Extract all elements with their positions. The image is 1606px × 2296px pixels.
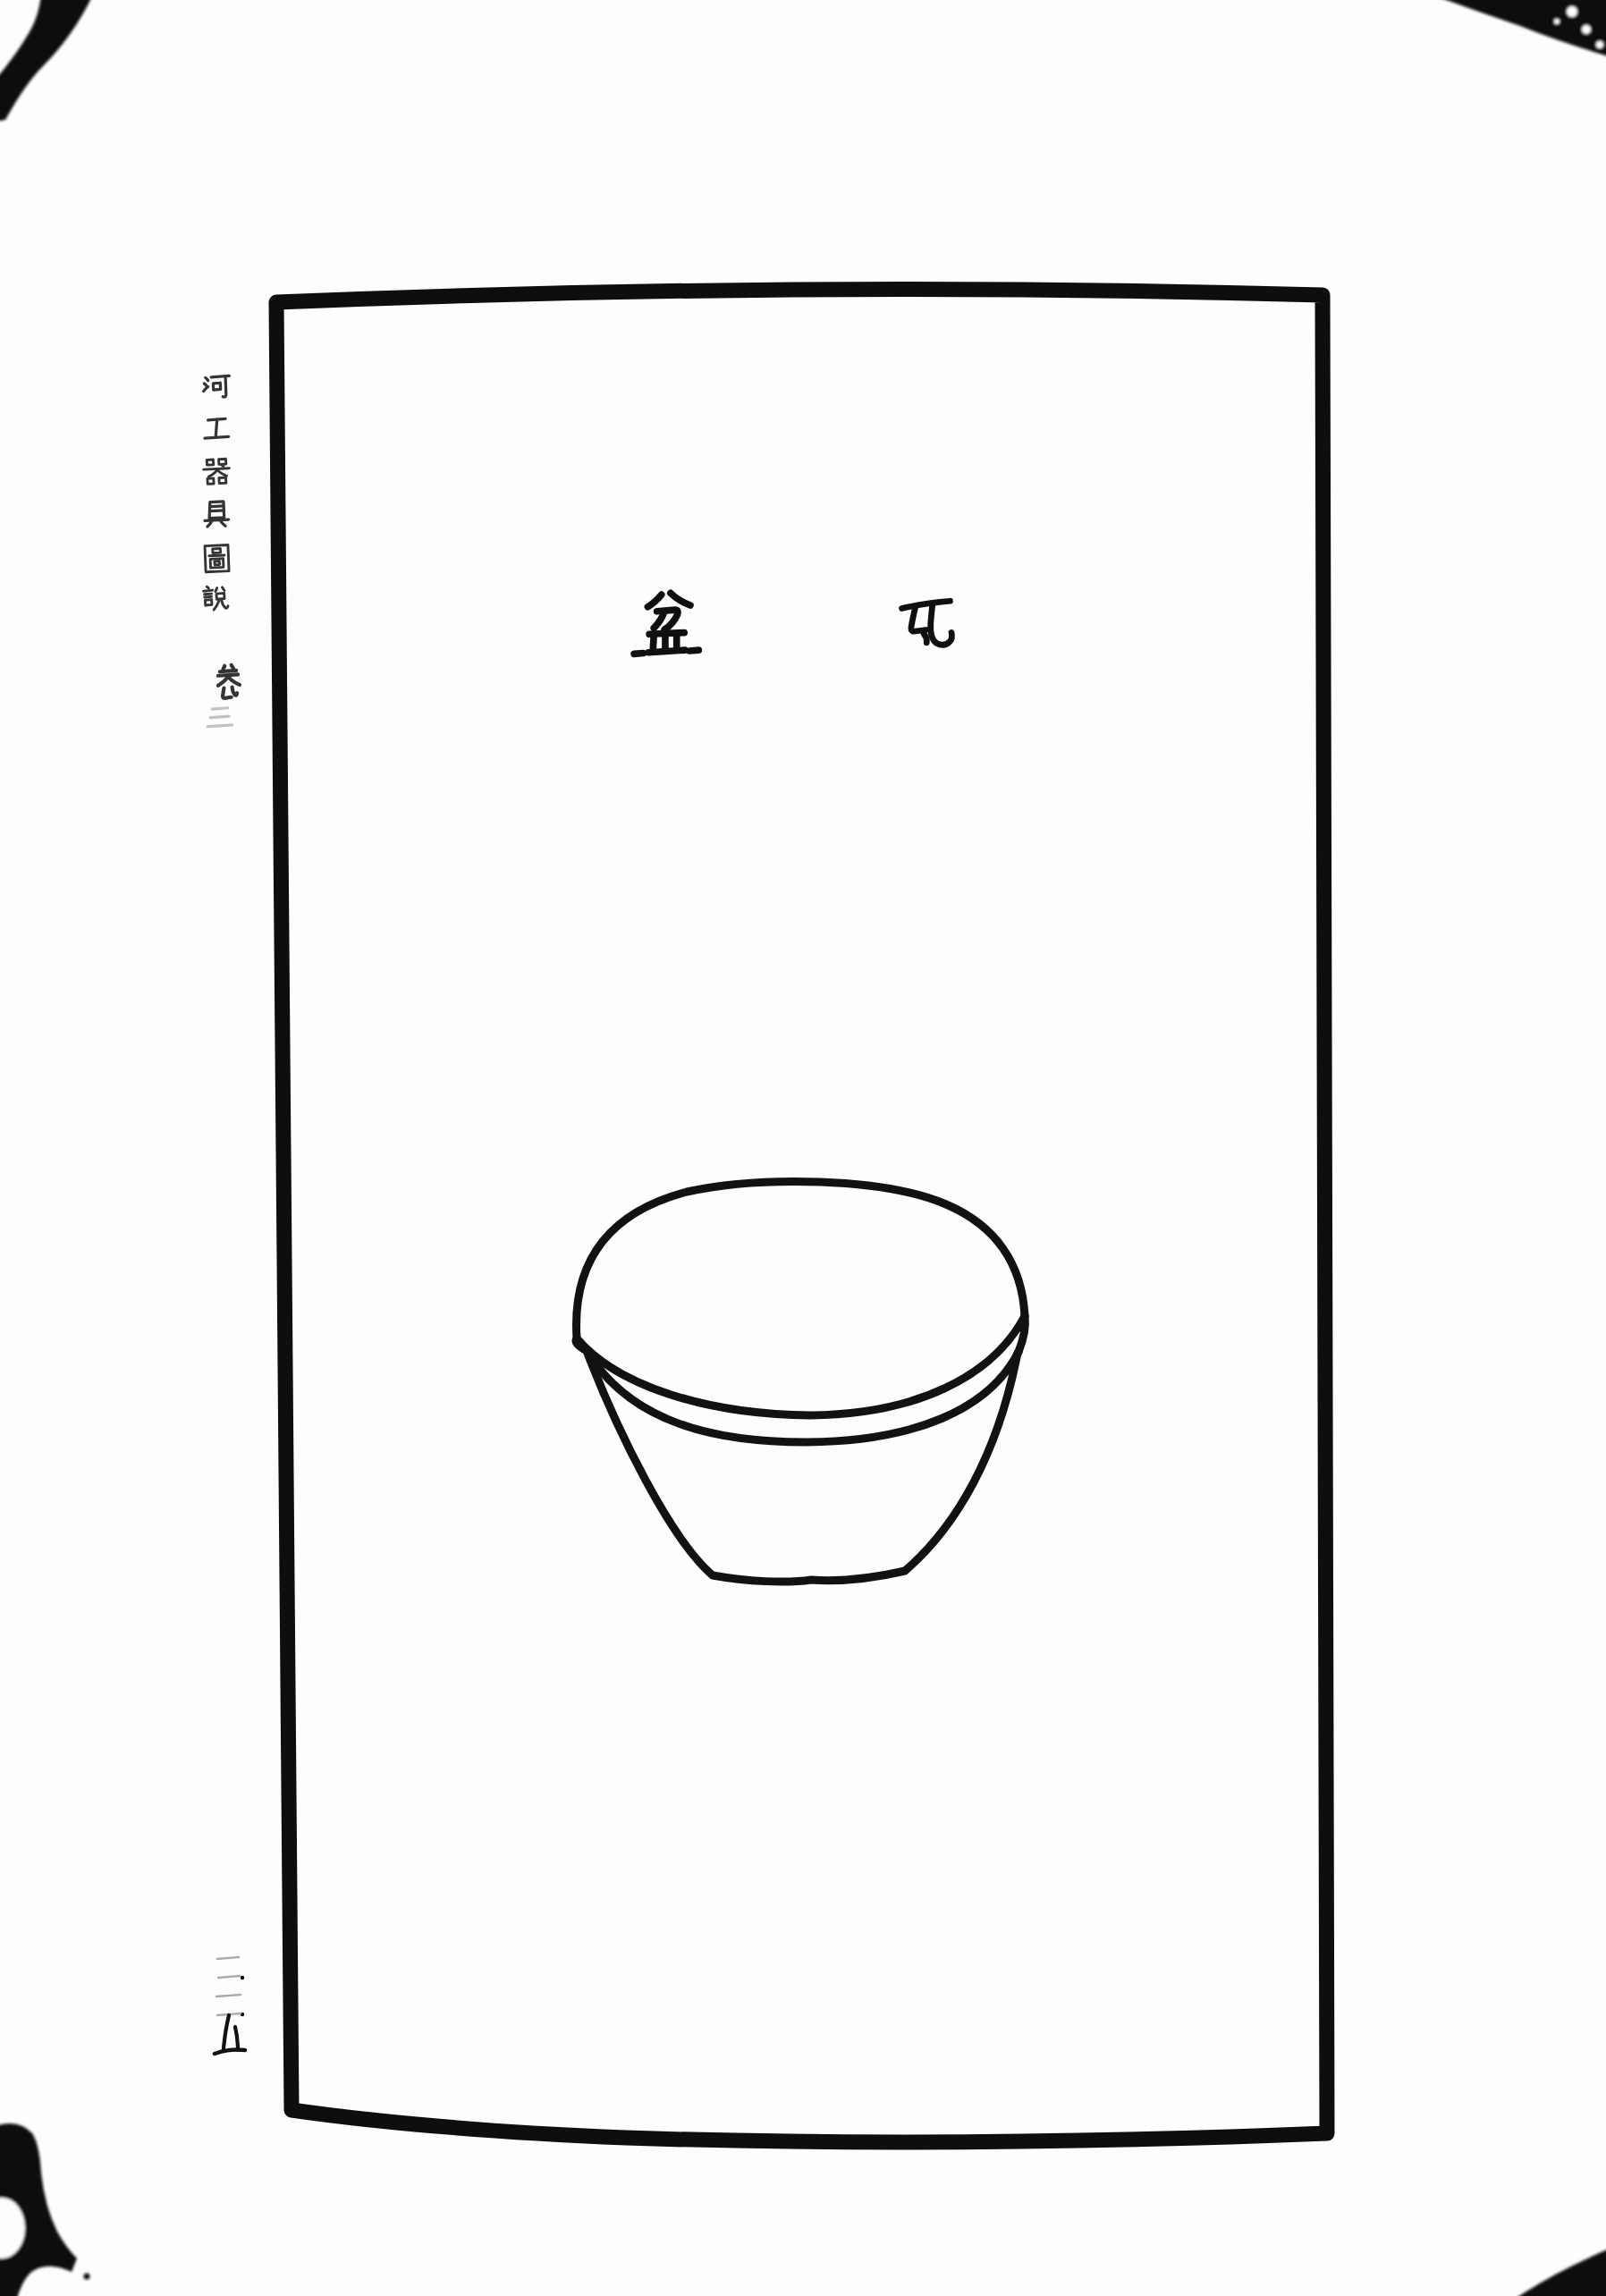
smudge-speckle — [1596, 41, 1603, 48]
side-char-ju — [205, 502, 229, 527]
smudge-speckle — [1582, 25, 1591, 34]
basin-dome — [577, 1181, 1025, 1338]
plate-title — [634, 593, 951, 654]
scan-corner-smudges — [0, 0, 1606, 2296]
side-char-shuo — [204, 587, 228, 610]
title-char-pen — [634, 593, 698, 654]
pagenum-char-yi — [217, 1957, 239, 1959]
side-char-qi — [204, 459, 230, 484]
ink-speck — [241, 1976, 244, 1979]
scan-canvas — [0, 0, 1606, 2296]
side-char-gong — [205, 418, 229, 438]
plate-frame — [276, 290, 1327, 2142]
basin-rim-lower — [587, 1351, 1019, 1442]
smudge-top-right — [1432, 0, 1606, 57]
smudge-speckle — [1567, 6, 1577, 17]
smudge-speck — [84, 2274, 90, 2280]
basin-rim-upper — [577, 1316, 1025, 1415]
pagenum-char-er — [216, 1976, 241, 1996]
book-page-scan: 瓦盆 河工器具圖說 卷三 一二五 — [0, 0, 1606, 2296]
basin-illustration — [576, 1181, 1025, 1582]
smudge-top-left — [0, 0, 93, 122]
side-char-san — [207, 708, 232, 727]
side-title — [204, 376, 240, 726]
side-char-he — [204, 376, 230, 397]
smudge-speckle — [1554, 19, 1560, 24]
pagenum-char-wu — [215, 2013, 245, 2054]
side-char-juan — [218, 665, 240, 698]
title-char-wa — [902, 601, 952, 645]
side-char-tu — [205, 545, 229, 572]
page-number — [215, 1957, 245, 2054]
smudge-bottom-right — [1511, 2248, 1606, 2296]
